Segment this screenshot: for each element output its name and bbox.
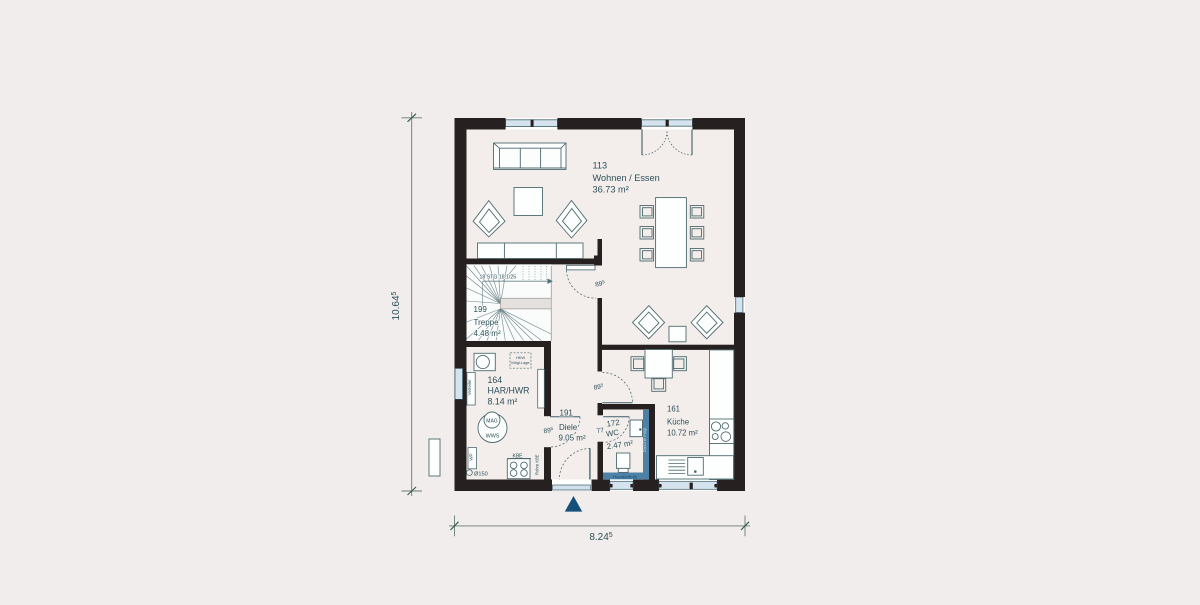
svg-text:10.72 m²: 10.72 m² (667, 429, 698, 438)
svg-text:Wohnen / Essen: Wohnen / Essen (593, 173, 660, 183)
svg-text:191: 191 (560, 409, 574, 418)
svg-text:36.73 m²: 36.73 m² (593, 185, 629, 195)
svg-text:161: 161 (667, 405, 680, 414)
svg-text:10.645: 10.645 (391, 291, 402, 320)
svg-text:WP: WP (468, 453, 473, 460)
svg-text:4.48 m²: 4.48 m² (474, 329, 501, 338)
svg-text:Ø150: Ø150 (474, 472, 488, 478)
svg-text:Rohre KBE: Rohre KBE (535, 454, 540, 475)
svg-text:Küche: Küche (667, 418, 689, 427)
svg-text:Verteiler: Verteiler (467, 379, 472, 395)
svg-text:113: 113 (593, 161, 608, 171)
svg-text:8.14 m²: 8.14 m² (488, 397, 518, 407)
svg-text:Diele: Diele (559, 423, 578, 432)
svg-text:18 STG 18.1/25: 18 STG 18.1/25 (480, 275, 517, 281)
svg-text:WC: WC (605, 428, 619, 439)
svg-text:Haustechnik: Haustechnik (613, 474, 638, 479)
svg-text:77: 77 (596, 427, 605, 435)
svg-text:Mögl.Lage: Mögl.Lage (511, 360, 529, 365)
svg-text:WWS: WWS (486, 434, 500, 440)
svg-text:MAG: MAG (486, 418, 498, 424)
svg-text:Treppe: Treppe (474, 318, 500, 327)
svg-text:HAR/HWR: HAR/HWR (488, 386, 530, 396)
svg-text:9.05 m²: 9.05 m² (559, 434, 586, 443)
svg-text:164: 164 (488, 375, 503, 385)
svg-text:199: 199 (474, 305, 488, 314)
